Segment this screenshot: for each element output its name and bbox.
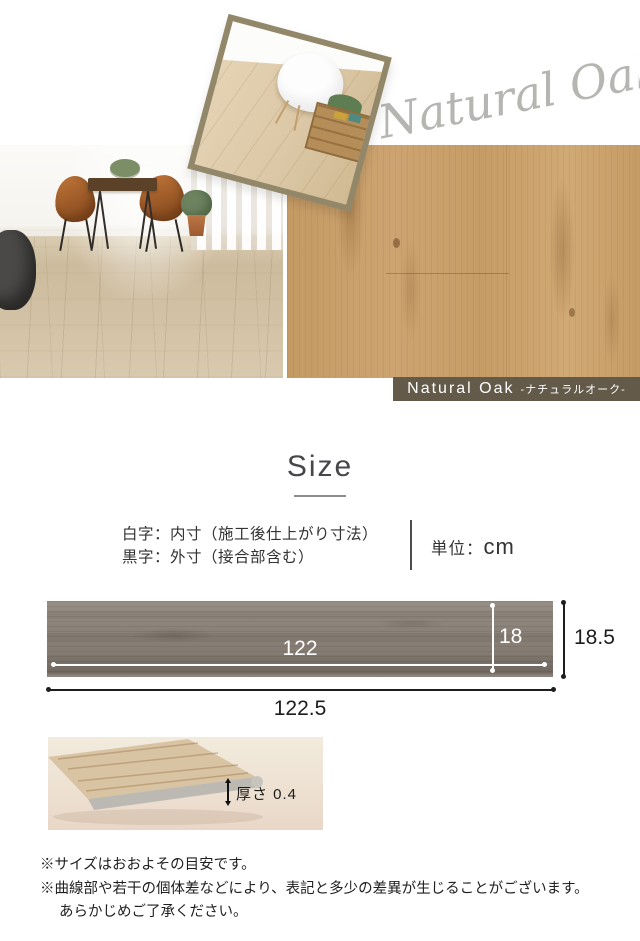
inner-length-line: [53, 664, 545, 666]
thickness-arrow-icon: [227, 782, 229, 802]
size-title: Size: [0, 450, 640, 484]
size-legend: 白字：内寸（施工後仕上がり寸法） 黒字：外寸（接合部含む）: [122, 523, 378, 569]
product-name-en: Natural Oak: [407, 380, 514, 398]
legend-line-1: 白字：内寸（施工後仕上がり寸法）: [122, 523, 378, 546]
table-plant: [110, 159, 140, 177]
dim-outer-width: 18.5: [574, 626, 615, 650]
inner-width-line: [492, 605, 494, 671]
plank-diagram: 122 18: [47, 601, 553, 677]
product-badge: Natural Oak -ナチュラルオーク-: [393, 377, 640, 401]
thickness-label: 厚さ 0.4: [236, 783, 297, 804]
size-underline: [294, 495, 346, 497]
note-line-3: あらかじめご了承ください。: [40, 901, 589, 925]
legend-divider: [410, 520, 412, 570]
dim-outer-length: 122.5: [47, 697, 553, 721]
outer-width-line: [563, 603, 565, 676]
unit-value: cm: [484, 534, 515, 560]
note-line-1: ※サイズはおおよその目安です。: [40, 854, 589, 878]
legend-line-2: 黒字：外寸（接合部含む）: [122, 546, 378, 569]
script-logo-text: Natural Oak: [373, 41, 640, 149]
product-name-ja: -ナチュラルオーク-: [521, 381, 626, 397]
unit-block: 単位： cm: [431, 526, 515, 568]
potted-plant: [181, 190, 212, 218]
footnotes: ※サイズはおおよその目安です。 ※曲線部や若干の個体差などにより、表記と多少の差…: [40, 854, 589, 925]
outer-length-line: [50, 689, 553, 691]
dim-inner-width: 18: [499, 625, 522, 649]
product-page: Natural Oak -ナチュラルオーク- Natural Oak Size …: [0, 0, 640, 941]
dining-table: [88, 178, 157, 191]
dim-inner-length: 122: [47, 637, 553, 661]
note-line-2: ※曲線部や若干の個体差などにより、表記と多少の差異が生じることがございます。: [40, 878, 589, 902]
unit-label: 単位：: [431, 535, 484, 559]
